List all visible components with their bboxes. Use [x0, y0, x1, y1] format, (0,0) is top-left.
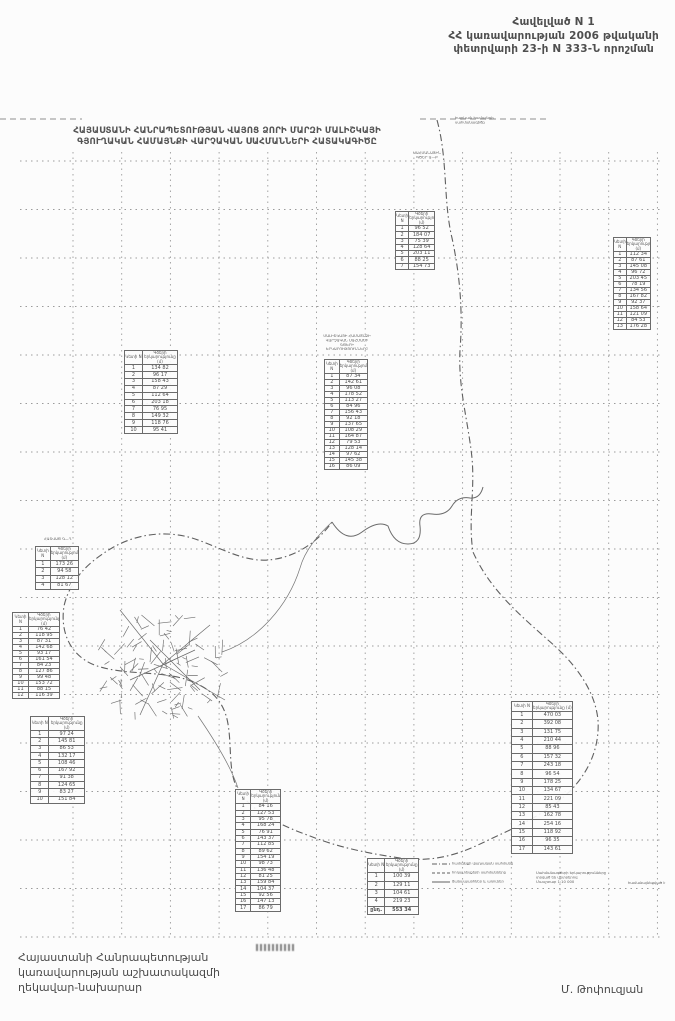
settlement-stroke — [177, 645, 189, 655]
table-row: 2184 07 — [396, 232, 435, 238]
map-note-text: հարևան համայնքիսահմանագիծը — [455, 116, 513, 125]
map-legend: համայնքի վարչական սահմանըհողատեսքերի սահ… — [432, 859, 554, 886]
point-number-cell: 3 — [125, 378, 143, 385]
map-note-text: ՍԱՀՄԱՆԱՅԻՆԳԾԵՐ Ա—Բ — [404, 151, 450, 160]
table-row: 688 25 — [396, 257, 435, 263]
boundary-table-t4: Կետի NԳծերի երկարությունը (մ)187 342142 … — [324, 359, 368, 469]
point-number-cell: 1 — [368, 873, 385, 881]
line-length-cell: 134 67 — [532, 787, 572, 795]
settlement-stroke — [216, 657, 222, 658]
cadastral-map-canvas — [0, 0, 675, 1021]
table-row: 196 52 — [396, 226, 435, 232]
settlement-stroke — [154, 669, 157, 673]
line-length-cell: 86 79 — [251, 905, 281, 912]
settlement-stroke — [159, 686, 166, 689]
boundary-table-grid: Կետի NԳծերի երկարությունը (մ)1112 34287 … — [613, 237, 651, 330]
settlement-stroke — [151, 652, 161, 664]
point-number-header: Կետի N — [31, 717, 49, 731]
line-length-cell: 96 35 — [532, 837, 572, 845]
line-length-cell: 86 53 — [49, 745, 85, 752]
point-number-cell: 17 — [236, 905, 251, 912]
table-row: 7243 18 — [512, 761, 573, 769]
line-length-cell: 154 73 — [409, 263, 435, 269]
river-line — [332, 487, 483, 544]
line-length-header: Գծերի երկարությունը (մ) — [143, 351, 178, 365]
table-row: 8167 82 — [614, 294, 651, 300]
point-number-cell: 4 — [125, 385, 143, 392]
map-note: հարևան համայնքիսահմանագիծը — [455, 116, 513, 130]
line-length-cell: 254 16 — [532, 820, 572, 828]
table-row: 5113 27 — [325, 398, 368, 404]
settlement-stroke — [167, 630, 172, 631]
table-row: 3131 75 — [512, 728, 573, 736]
line-length-cell: 158 43 — [143, 378, 178, 385]
table-row: 496 72 — [614, 270, 651, 276]
line-length-cell: 128 12 — [50, 575, 78, 582]
point-number-cell: 8 — [512, 770, 533, 778]
table-row: 4210 44 — [512, 736, 573, 744]
map-note-line: ԵՐԿԱՐՈՒԹՅՈՒՆՆԵՐԸ — [321, 347, 373, 351]
point-number-cell: 9 — [125, 420, 143, 427]
point-number-cell: 2 — [125, 372, 143, 379]
table-row: 13176 28 — [614, 324, 651, 330]
point-number-cell: 4 — [512, 736, 533, 744]
point-number-cell: 3 — [31, 745, 49, 752]
point-number-cell: 1 — [125, 365, 143, 372]
ink-smudge — [256, 944, 294, 951]
settlement-stroke — [176, 649, 179, 664]
settlement-stroke — [98, 639, 105, 650]
line-length-cell: 124 65 — [49, 782, 85, 789]
table-row: 1173 26 — [36, 561, 79, 568]
scanned-decree-sheet: Հավելված N 1 ՀՀ կառավարության 2006 թվակա… — [0, 0, 675, 1021]
table-row: 678 19 — [614, 282, 651, 288]
point-number-cell: 4 — [36, 582, 51, 589]
table-row: 6157 32 — [512, 753, 573, 761]
table-row: 2142 61 — [325, 380, 368, 386]
line-length-cell: 97 24 — [49, 731, 85, 738]
table-row: 1285 43 — [512, 803, 573, 811]
boundary-table-t5: Կետի NԳծերի երկարությունը (մ)1173 26294 … — [35, 546, 79, 590]
map-note: ՀԱՏՎԱԾ Գ—Դ — [44, 537, 84, 544]
table-row: 4168 24 — [236, 823, 281, 829]
point-number-cell: 3 — [512, 728, 533, 736]
table-row: 4132 17 — [31, 753, 85, 760]
line-length-header: Գծերի երկարությունը (մ) — [251, 790, 281, 804]
point-number-cell: 3 — [36, 575, 51, 582]
settlement-stroke — [100, 687, 107, 689]
line-length-cell: 96 17 — [143, 372, 178, 379]
table-row: 481 67 — [36, 582, 79, 589]
settlement-stroke — [138, 669, 148, 670]
settlement-stroke — [153, 647, 156, 652]
table-row: 197 24 — [31, 731, 85, 738]
line-length-cell: 219 23 — [385, 898, 419, 906]
table-row: 13128 14 — [325, 446, 368, 452]
point-number-header: Կետի N — [236, 790, 251, 804]
point-number-header: Կետի N — [512, 702, 533, 712]
table-row: 588 96 — [512, 745, 573, 753]
line-length-cell: 203 18 — [143, 399, 178, 406]
line-length-cell: 91 38 — [49, 774, 85, 781]
table-total-row: ընդ.553 34 — [368, 906, 419, 914]
point-number-cell: 17 — [512, 845, 533, 853]
map-note-line: սահմանագիծը — [455, 120, 513, 124]
table-row: 386 53 — [31, 745, 85, 752]
settlement-stroke — [158, 622, 172, 623]
settlement-stroke — [173, 615, 183, 626]
table-row: 14104 37 — [236, 886, 281, 892]
table-row: 10134 67 — [512, 787, 573, 795]
settlement-stroke — [162, 711, 167, 714]
table-row: 7154 73 — [396, 263, 435, 269]
point-number-cell: 6 — [125, 399, 143, 406]
table-row: 9178 25 — [512, 778, 573, 786]
settlement-stroke — [157, 699, 166, 702]
boundary-table-grid: Կետի NԳծերի երկարությունը (մ)1100 392129… — [367, 858, 419, 915]
table-row: 11221 09 — [512, 795, 573, 803]
signature-line3: ղեկավար-նախարար — [18, 980, 220, 995]
point-number-cell: 5 — [125, 392, 143, 399]
table-row: 5108 46 — [31, 760, 85, 767]
table-row: 7112 85 — [236, 842, 281, 848]
line-length-cell: 83 27 — [49, 789, 85, 796]
table-row: 11164 87 — [325, 434, 368, 440]
road-to-river — [222, 522, 332, 652]
table-row: 3158 43 — [125, 378, 178, 385]
settlement-stroke — [175, 615, 178, 619]
point-number-cell: 10 — [125, 427, 143, 434]
table-row: 8127 86 — [13, 669, 60, 675]
settlement-stroke — [222, 640, 223, 655]
map-note-text: ՄԱԼԻՇԿԱՅԻ ՀԱՄԱՅՆՔԻՎԱՐՉԱԿԱՆ ՍԱՀՄԱՆԻԳԾԵՐԻԵ… — [321, 334, 373, 351]
point-number-cell: 7 — [396, 263, 409, 269]
table-row: 12116 39 — [13, 693, 60, 699]
table-row: 1095 41 — [125, 427, 178, 434]
table-row: 7156 43 — [325, 410, 368, 416]
settlement-stroke — [189, 631, 190, 646]
point-number-header: Կետի N — [125, 351, 143, 365]
point-number-cell: 12 — [13, 693, 29, 699]
table-row: 5112 64 — [125, 392, 178, 399]
legend-label: ճանապարհներ և առուներ — [452, 879, 504, 883]
settlement-stroke — [101, 647, 106, 652]
point-number-cell: 4 — [368, 898, 385, 906]
settlement-street — [163, 664, 225, 700]
line-length-cell: 470 03 — [532, 711, 572, 719]
table-row: 3128 12 — [36, 575, 79, 582]
line-length-cell: 392 08 — [532, 720, 572, 728]
settlement-street-cluster — [98, 610, 227, 720]
point-number-cell: 14 — [512, 820, 533, 828]
table-row: 776 95 — [125, 406, 178, 413]
settlement-stroke — [141, 626, 149, 630]
table-row: 17143 61 — [512, 845, 573, 853]
legend-label: համայնքի վարչական սահմանը — [452, 861, 513, 865]
line-length-cell: 143 61 — [532, 845, 572, 853]
total-cell: ընդ. — [368, 906, 385, 914]
settlement-stroke — [105, 661, 110, 664]
map-note: համաձայնեցված է — [628, 881, 666, 888]
table-row: 1100 39 — [368, 873, 419, 881]
line-length-cell: 176 28 — [626, 324, 650, 330]
point-number-header: Կետի N — [368, 859, 385, 873]
point-number-cell: 1 — [36, 561, 51, 568]
line-length-cell: 129 11 — [385, 881, 419, 889]
settlement-stroke — [192, 666, 198, 667]
line-length-cell: 221 09 — [532, 795, 572, 803]
line-length-cell: 203 45 — [626, 276, 650, 282]
line-length-header: Գծերի երկարությունը (մ) — [385, 859, 419, 873]
point-number-cell: 10 — [512, 787, 533, 795]
line-length-cell: 76 95 — [143, 406, 178, 413]
line-length-cell: 121 09 — [626, 312, 650, 318]
line-length-cell: 85 43 — [532, 803, 572, 811]
settlement-stroke — [152, 682, 164, 694]
point-number-cell: 3 — [368, 889, 385, 897]
settlement-stroke — [188, 708, 192, 710]
point-number-cell: 2 — [36, 568, 51, 575]
settlement-stroke — [123, 626, 129, 636]
settlement-stroke — [133, 685, 143, 696]
line-length-header: Գծերի երկարությունը (մ) — [50, 547, 78, 561]
point-number-header: Կետի N — [36, 547, 51, 561]
point-number-cell: 2 — [512, 720, 533, 728]
table-row: 375 39 — [396, 238, 435, 244]
table-row: 1786 79 — [236, 905, 281, 912]
settlement-stroke — [141, 674, 148, 685]
point-number-cell: 13 — [512, 812, 533, 820]
point-number-cell: 8 — [31, 782, 49, 789]
settlement-stroke — [100, 681, 107, 692]
point-number-cell: 11 — [512, 795, 533, 803]
table-row: 2127 53 — [236, 810, 281, 816]
point-number-cell: 8 — [125, 413, 143, 420]
table-row: 15118 92 — [512, 828, 573, 836]
table-row: 287 61 — [614, 258, 651, 264]
point-number-cell: 1 — [512, 711, 533, 719]
table-row: 6161 54 — [13, 657, 60, 663]
line-length-cell: 178 25 — [532, 778, 572, 786]
line-length-cell: 157 32 — [532, 753, 572, 761]
line-length-cell: 118 92 — [532, 828, 572, 836]
point-number-header: Կետի N — [614, 238, 627, 252]
settlement-stroke — [114, 644, 124, 655]
boundary-table-t3: Կետի NԳծերի երկարությունը (մ)1134 82296 … — [124, 350, 178, 434]
boundary-table-grid: Կետի NԳծերի երկարությունը (մ)187 342142 … — [324, 359, 368, 470]
table-row: 4128 64 — [396, 244, 435, 250]
line-length-cell: 95 41 — [143, 427, 178, 434]
settlement-stroke — [202, 694, 212, 701]
boundary-table-t2: Կետի NԳծերի երկարությունը (մ)1112 34287 … — [613, 237, 651, 330]
point-number-cell: 7 — [512, 761, 533, 769]
table-row: 1284 53 — [614, 318, 651, 324]
line-length-cell: 158 64 — [626, 306, 650, 312]
point-number-cell: 12 — [512, 803, 533, 811]
table-row: 9118 76 — [125, 420, 178, 427]
line-length-cell: 87 29 — [143, 385, 178, 392]
settlement-stroke — [171, 642, 174, 651]
point-number-cell: 7 — [125, 406, 143, 413]
point-number-cell: 2 — [31, 738, 49, 745]
line-length-cell: 94 58 — [50, 568, 78, 575]
line-length-header: Գծերի երկարությունը (մ) — [409, 212, 435, 226]
point-number-cell: 15 — [512, 828, 533, 836]
signature-line2: կառավարության աշխատակազմի — [18, 965, 220, 980]
settlement-stroke — [160, 633, 170, 636]
settlement-street — [150, 640, 200, 690]
point-number-cell: 2 — [368, 881, 385, 889]
table-row: 1470 03 — [512, 711, 573, 719]
boundary-table-t7: Կետի NԳծերի երկարությունը (մ)197 242145 … — [30, 716, 85, 804]
table-row: 1134 82 — [125, 365, 178, 372]
point-number-cell: 6 — [31, 767, 49, 774]
line-length-cell: 210 44 — [532, 736, 572, 744]
solid-line-symbol-icon — [432, 879, 450, 885]
settlement-stroke — [204, 658, 218, 665]
point-number-cell: 16 — [325, 464, 340, 470]
table-row: 296 17 — [125, 372, 178, 379]
point-number-cell: 6 — [512, 753, 533, 761]
map-note-text: համաձայնեցված է — [628, 881, 666, 885]
settlement-stroke — [180, 704, 187, 716]
line-length-cell: 96 54 — [532, 770, 572, 778]
line-length-cell: 162 78 — [532, 812, 572, 820]
point-number-header: Կետի N — [396, 212, 409, 226]
settlement-stroke — [182, 657, 186, 659]
line-length-cell: 88 96 — [532, 745, 572, 753]
table-row: 2392 08 — [512, 720, 573, 728]
line-length-cell: 116 39 — [28, 693, 59, 699]
settlement-stroke — [207, 700, 210, 703]
settlement-stroke — [171, 692, 180, 702]
boundary-table-grid: Կետի NԳծերի երկարությունը (մ)1134 82296 … — [124, 350, 178, 434]
boundary-table-t10: Կետի NԳծերի երկարությունը (մ)1100 392129… — [367, 858, 419, 915]
boundary-table-grid: Կետի NԳծերի երկարությունը (մ)184 162127 … — [235, 789, 281, 912]
line-length-header: Գծերի երկարությունը (մ) — [532, 702, 572, 712]
table-row: 8124 65 — [31, 782, 85, 789]
legend-label: հողատեսքերի սահմանները — [452, 870, 506, 874]
point-number-cell: 1 — [31, 731, 49, 738]
table-row: 11121 09 — [614, 312, 651, 318]
legend-item: համայնքի վարչական սահմանը — [432, 859, 554, 868]
table-row: 487 29 — [125, 385, 178, 392]
line-length-cell: 131 75 — [532, 728, 572, 736]
table-row: 10153 72 — [13, 681, 60, 687]
settlement-stroke — [184, 617, 195, 619]
point-number-cell: 5 — [31, 760, 49, 767]
table-row: 3104 61 — [368, 889, 419, 897]
line-length-cell: 134 56 — [626, 288, 650, 294]
line-length-cell: 81 67 — [50, 582, 78, 589]
line-length-cell: 151 84 — [49, 796, 85, 803]
boundary-table-t1: Կետի NԳծերի երկարությունը (մ)196 522184 … — [395, 211, 435, 270]
line-length-header: Գծերի երկարությունը (մ) — [28, 613, 59, 627]
map-note: ՍԱՀՄԱՆԱՅԻՆԳԾԵՐ Ա—Բ — [404, 151, 450, 165]
signatory-name: Մ. Թոփուզյան — [561, 983, 643, 996]
point-number-cell: 16 — [512, 837, 533, 845]
table-row: 13162 78 — [512, 812, 573, 820]
signature-block: Հայաստանի Հանրապետության կառավարության ա… — [18, 950, 220, 995]
table-row: 7134 56 — [614, 288, 651, 294]
settlement-street — [140, 664, 163, 715]
table-row: 2129 11 — [368, 881, 419, 889]
line-length-cell: 145 08 — [626, 264, 650, 270]
table-row: 9154 19 — [236, 854, 281, 860]
table-row: 16147 13 — [236, 899, 281, 905]
table-row: 10158 64 — [614, 306, 651, 312]
road-to-boundary — [198, 716, 238, 788]
table-row: 11136 48 — [236, 867, 281, 873]
map-note-line: համաձայնեցված է — [628, 881, 666, 885]
line-length-cell: 118 76 — [143, 420, 178, 427]
table-row: 4219 23 — [368, 898, 419, 906]
settlement-street — [120, 610, 163, 664]
point-number-header: Կետի N — [13, 613, 29, 627]
table-row: 5203 11 — [396, 251, 435, 257]
settlement-stroke — [195, 644, 204, 650]
settlement-stroke — [163, 640, 164, 651]
dashdot-line-symbol-icon — [432, 861, 450, 867]
total-cell: 553 34 — [385, 906, 419, 914]
table-row: 10151 84 — [31, 796, 85, 803]
table-row: 9137 65 — [325, 422, 368, 428]
line-length-cell: 167 92 — [49, 767, 85, 774]
map-note: ՄԱԼԻՇԿԱՅԻ ՀԱՄԱՅՆՔԻՎԱՐՉԱԿԱՆ ՍԱՀՄԱՆԻԳԾԵՐԻԵ… — [321, 334, 373, 362]
legend-item: ճանապարհներ և առուներ — [432, 877, 554, 886]
table-row: 896 54 — [512, 770, 573, 778]
table-row: 6167 92 — [31, 767, 85, 774]
map-note-line: ՀԱՏՎԱԾ Գ—Դ — [44, 537, 84, 541]
boundary-table-t9: Կետի NԳծերի երկարությունը (մ)184 162127 … — [235, 789, 281, 912]
settlement-stroke — [120, 700, 121, 715]
line-length-cell: 173 26 — [50, 561, 78, 568]
line-length-cell: 108 46 — [49, 760, 85, 767]
point-number-cell: 5 — [512, 745, 533, 753]
table-row: 10108 29 — [325, 428, 368, 434]
settlement-stroke — [167, 688, 182, 690]
table-row: 15145 38 — [325, 458, 368, 464]
table-row: 14254 16 — [512, 820, 573, 828]
line-length-cell: 86 09 — [339, 464, 367, 470]
boundary-table-grid: Կետի NԳծերի երկարությունը (մ)1173 26294 … — [35, 546, 79, 590]
table-row: 6203 18 — [125, 399, 178, 406]
signature-line1: Հայաստանի Հանրապետության — [18, 950, 220, 965]
boundary-table-grid: Կետի NԳծերի երկարությունը (մ)196 522184 … — [395, 211, 435, 270]
line-length-cell: 112 34 — [626, 252, 650, 258]
table-row: 791 38 — [31, 774, 85, 781]
settlement-stroke — [186, 657, 199, 663]
map-note-text: ՀԱՏՎԱԾ Գ—Դ — [44, 537, 84, 541]
line-length-cell: 145 81 — [49, 738, 85, 745]
line-length-cell: 167 82 — [626, 294, 650, 300]
table-row: 6143 37 — [236, 835, 281, 841]
settlement-stroke — [139, 659, 144, 660]
table-row: 13159 84 — [236, 880, 281, 886]
settlement-stroke — [182, 695, 184, 709]
boundary-table-grid: Կետի NԳծերի երկարությունը (մ)1470 032392… — [511, 701, 573, 854]
table-row: 992 37 — [614, 300, 651, 306]
table-row: 4142 68 — [13, 645, 60, 651]
point-number-cell: 9 — [31, 789, 49, 796]
map-note-line: ԳԾԵՐ Ա—Բ — [404, 155, 450, 159]
boundary-table-t6: Կետի NԳծերի երկարությունը (մ)176 422118 … — [12, 612, 60, 698]
line-length-cell: 149 32 — [143, 413, 178, 420]
table-row: 1696 35 — [512, 837, 573, 845]
settlement-stroke — [141, 615, 154, 626]
settlement-stroke — [217, 683, 220, 697]
point-number-cell: 13 — [614, 324, 627, 330]
